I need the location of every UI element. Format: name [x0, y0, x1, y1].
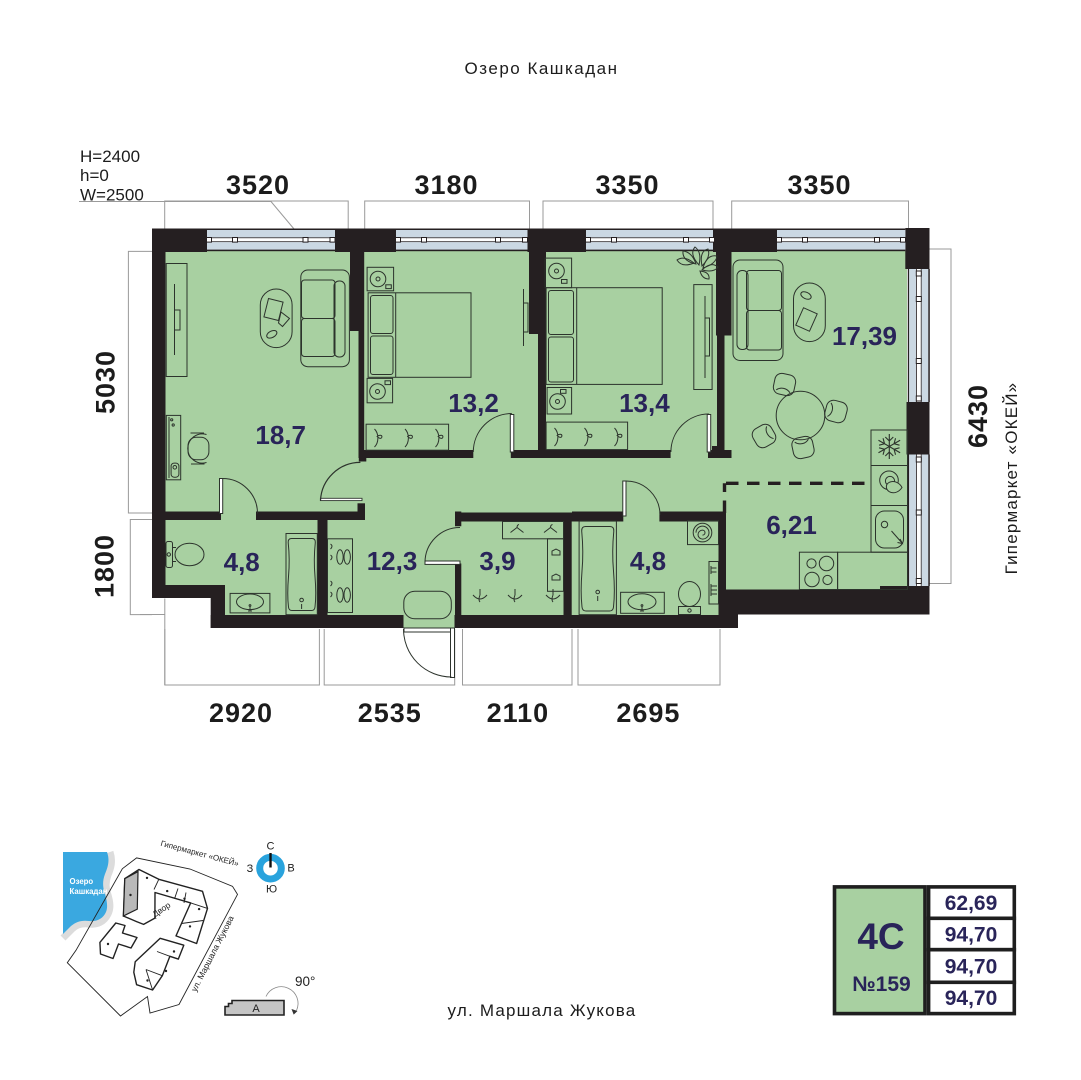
svg-text:4,8: 4,8 — [224, 547, 260, 577]
svg-text:17,39: 17,39 — [832, 321, 897, 351]
svg-text:5030: 5030 — [91, 350, 121, 414]
svg-text:Озеро Кашкадан: Озеро Кашкадан — [465, 59, 619, 78]
svg-text:4С: 4С — [857, 916, 904, 957]
svg-text:1800: 1800 — [90, 534, 120, 598]
svg-text:18,7: 18,7 — [255, 420, 306, 450]
svg-text:12,3: 12,3 — [367, 546, 418, 576]
svg-text:В: В — [287, 863, 294, 875]
svg-text:С: С — [267, 841, 275, 853]
svg-text:Кашкадан: Кашкадан — [70, 887, 108, 896]
svg-text:94,70: 94,70 — [945, 956, 998, 979]
svg-text:№159: №159 — [852, 973, 910, 996]
svg-text:H=2400: H=2400 — [80, 147, 140, 166]
svg-text:94,70: 94,70 — [945, 987, 998, 1010]
svg-text:З: З — [247, 863, 254, 875]
svg-text:94,70: 94,70 — [945, 924, 998, 947]
svg-text:2535: 2535 — [358, 698, 422, 728]
svg-text:3180: 3180 — [414, 170, 478, 200]
svg-text:А: А — [252, 1003, 260, 1015]
svg-text:13,2: 13,2 — [448, 388, 499, 418]
svg-text:3520: 3520 — [226, 170, 290, 200]
svg-text:Гипермаркет «ОКЕЙ»: Гипермаркет «ОКЕЙ» — [1002, 382, 1021, 575]
svg-text:2920: 2920 — [209, 698, 273, 728]
svg-text:Ю: Ю — [266, 884, 277, 896]
svg-text:62,69: 62,69 — [945, 892, 998, 915]
svg-text:3,9: 3,9 — [479, 546, 515, 576]
svg-text:6430: 6430 — [963, 384, 993, 448]
svg-text:Озеро: Озеро — [70, 877, 94, 886]
svg-text:2110: 2110 — [487, 698, 550, 728]
svg-text:h=0: h=0 — [80, 166, 109, 185]
svg-text:2695: 2695 — [616, 698, 680, 728]
svg-text:3350: 3350 — [595, 170, 659, 200]
svg-text:90°: 90° — [295, 974, 315, 989]
svg-text:3350: 3350 — [787, 170, 851, 200]
svg-text:13,4: 13,4 — [619, 388, 670, 418]
svg-text:ул. Маршала Жукова: ул. Маршала Жукова — [448, 1001, 637, 1020]
svg-text:6,21: 6,21 — [766, 510, 817, 540]
svg-text:4,8: 4,8 — [630, 546, 666, 576]
